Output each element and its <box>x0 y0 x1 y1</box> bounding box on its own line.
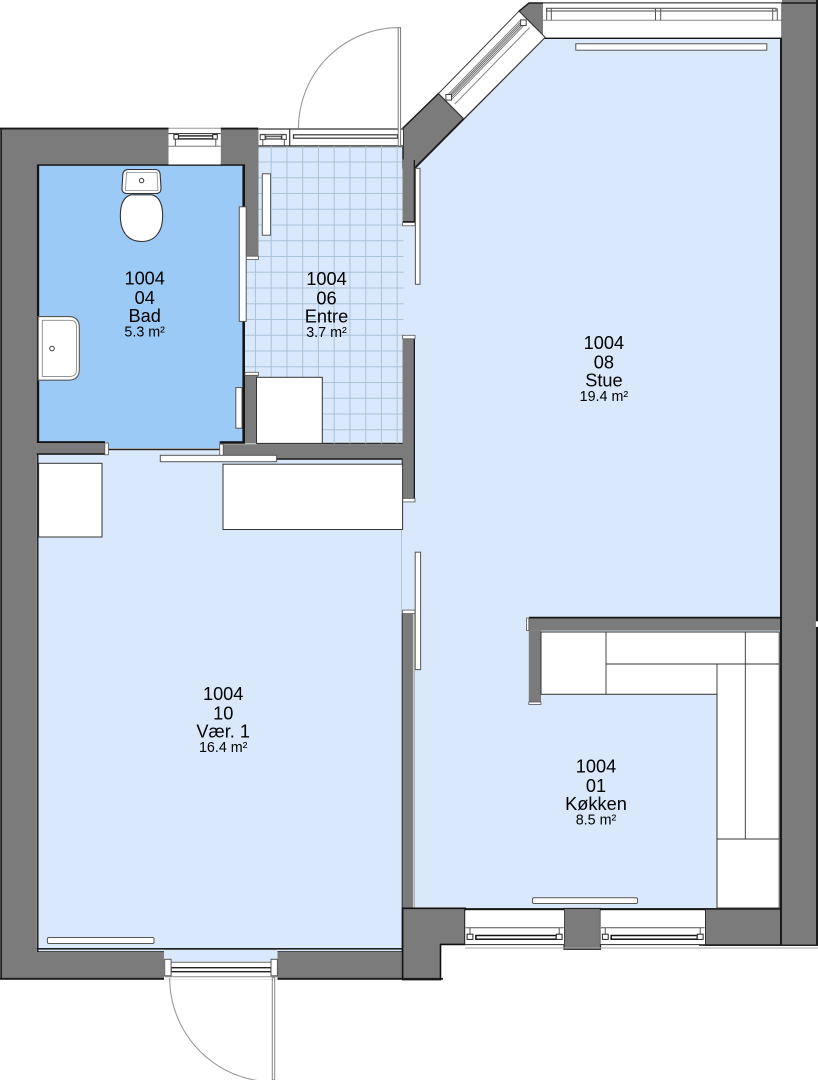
svg-text:1004: 1004 <box>306 269 346 289</box>
svg-text:5.3 m²: 5.3 m² <box>124 324 165 340</box>
svg-text:16.4 m²: 16.4 m² <box>199 740 248 756</box>
svg-text:01: 01 <box>586 776 606 796</box>
svg-text:19.4 m²: 19.4 m² <box>580 389 629 405</box>
svg-text:Vær. 1: Vær. 1 <box>196 722 250 742</box>
svg-text:06: 06 <box>316 288 336 308</box>
svg-text:3.7 m²: 3.7 m² <box>306 325 347 341</box>
svg-text:08: 08 <box>594 353 614 373</box>
svg-text:10: 10 <box>213 703 233 723</box>
svg-text:Stue: Stue <box>585 371 622 391</box>
svg-text:Køkken: Køkken <box>565 794 627 814</box>
svg-text:1004: 1004 <box>584 333 624 353</box>
svg-text:1004: 1004 <box>124 268 164 288</box>
svg-text:Bad: Bad <box>129 306 161 326</box>
svg-text:Entre: Entre <box>305 307 348 327</box>
svg-text:1004: 1004 <box>203 684 243 704</box>
svg-text:8.5 m²: 8.5 m² <box>576 813 617 829</box>
svg-text:04: 04 <box>135 288 155 308</box>
svg-text:1004: 1004 <box>576 757 616 777</box>
